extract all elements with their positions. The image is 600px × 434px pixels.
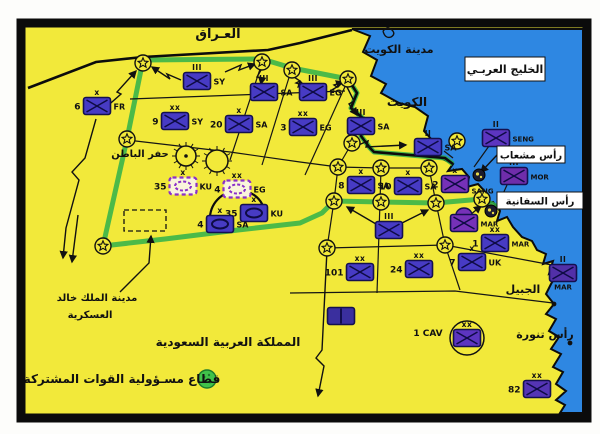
unit-country: SA	[256, 121, 269, 130]
region-label-kkmc-line2: العسكرية	[68, 310, 113, 321]
svg-text:رأس السفانية: رأس السفانية	[506, 195, 575, 208]
unit-number: 10	[379, 183, 392, 193]
corps-star-marker	[284, 62, 300, 78]
unit-country: SY	[192, 118, 204, 127]
region-label-jubail: الجبيل	[506, 283, 541, 296]
region-label-kuwait-city: مدينة الكويت	[364, 43, 433, 56]
unit-echelon: III	[308, 74, 318, 83]
unit-echelon: III	[356, 108, 366, 117]
unit-echelon: III	[384, 212, 394, 221]
region-label-ras-tanura: رأس تنورة	[516, 327, 573, 341]
unit-echelon: xx	[298, 109, 309, 118]
corps-star-marker	[330, 159, 346, 175]
unit-echelon: xx	[170, 103, 181, 112]
unit-number: 3	[280, 124, 286, 134]
corps-star-marker	[135, 55, 151, 71]
region-label-saudi-arabia: المملكة العربية السعودية	[156, 335, 301, 350]
unit-country: MAR	[512, 241, 530, 249]
unit-country: FR	[114, 103, 126, 112]
coast-town-dot	[568, 341, 573, 346]
corps-star-marker	[421, 160, 437, 176]
unit-echelon: xx	[490, 225, 501, 234]
unit-country: SA	[237, 221, 250, 230]
unit-echelon: x	[358, 167, 363, 176]
unit-echelon: x	[251, 195, 256, 204]
unit-echelon: III	[192, 63, 202, 72]
unit-echelon: x	[94, 88, 99, 97]
unit-number: 7	[449, 259, 455, 269]
region-label-kuwait: الكويت	[387, 95, 427, 110]
unit-number: 4	[197, 221, 203, 231]
unit-echelon: xx	[232, 171, 243, 180]
svg-text:الخليج العربـي: الخليج العربـي	[467, 63, 544, 76]
unit-number: 82	[508, 386, 521, 396]
unit-echelon: xx	[414, 251, 425, 260]
unit-echelon: x	[469, 244, 474, 253]
unit-country: EG	[330, 89, 342, 98]
unit-country: EG	[254, 186, 266, 195]
corps-star-marker	[254, 54, 270, 70]
corps-star-marker	[340, 71, 356, 87]
corps-star-marker	[373, 194, 389, 210]
svg-text:رأس مشعاب: رأس مشعاب	[500, 149, 563, 162]
military-map: IIISY x6FR xx9SY x20SA xx3EG IIISA IIIEG…	[0, 0, 600, 434]
corps-star-marker	[373, 160, 389, 176]
unit-echelon: xx	[532, 371, 543, 380]
unit-echelon: II	[425, 129, 432, 138]
unit-number: 4	[214, 186, 220, 196]
region-label-hafar-al-batin: حفر الباطن	[111, 149, 169, 160]
unit-number: 2	[432, 181, 438, 191]
unit-number: 9	[152, 118, 158, 128]
unit-echelon: III	[259, 74, 269, 83]
unit-echelon: II	[493, 120, 500, 129]
unit-echelon: xx	[462, 320, 473, 329]
unit-country: SA	[281, 89, 294, 98]
unit-echelon: x	[180, 168, 185, 177]
unit-number: 20	[210, 121, 223, 131]
unit-number: 8	[338, 182, 344, 192]
unit-country: SANG	[472, 188, 494, 196]
unit-country: SA	[378, 123, 391, 132]
unit-echelon: xx	[355, 254, 366, 263]
unit-number: 101	[325, 269, 344, 279]
unit-echelon: x	[452, 166, 457, 175]
unit-number: 24	[390, 266, 403, 276]
unit-country: SENG	[513, 136, 535, 144]
unit-marker	[328, 308, 355, 325]
corps-star-marker	[428, 195, 444, 211]
region-label-iraq: العـراق	[195, 27, 240, 42]
port-symbol	[485, 205, 497, 217]
coast-town-dot	[552, 302, 557, 307]
unit-echelon: x	[405, 168, 410, 177]
sea-label-ras-mishab: رأس مشعاب	[497, 146, 565, 163]
unit-echelon: II	[560, 255, 567, 264]
unit-country: MOR	[531, 174, 550, 182]
legend-text: قطاع مسـؤولية القوات المشتركة	[24, 372, 221, 387]
corps-star-marker	[326, 193, 342, 209]
sea-label-ras-safaniya: رأس السفانية	[497, 192, 583, 209]
unit-country: SY	[214, 78, 226, 87]
unit-country: SA	[445, 144, 458, 153]
map-page: IIISY x6FR xx9SY x20SA xx3EG IIISA IIIEG…	[0, 0, 600, 434]
port-symbol	[473, 169, 485, 181]
region-label-1cav-label: 1 CAV	[413, 329, 442, 339]
region-label-kkmc-line1: مدينة الملك خالد	[57, 293, 138, 304]
corps-star-marker	[95, 238, 111, 254]
unit-echelon: x	[236, 106, 241, 115]
unit-country: EG	[320, 124, 332, 133]
unit-number: 6	[74, 103, 80, 113]
corps-star-marker	[437, 237, 453, 253]
unit-country: UK	[489, 259, 502, 268]
corps-star-marker	[344, 135, 360, 151]
unit-country: KU	[200, 183, 213, 192]
unit-number: 35	[154, 183, 167, 193]
unit-echelon: x	[217, 206, 222, 215]
corps-star-marker	[119, 131, 135, 147]
unit-country: KU	[271, 210, 284, 219]
unit-country: MAR	[554, 284, 572, 292]
corps-star-marker	[319, 240, 335, 256]
legend-joint-forces: قطاع مسـؤولية القوات المشتركة	[24, 370, 221, 388]
sea-label-arabian-gulf: الخليج العربـي	[465, 57, 545, 81]
